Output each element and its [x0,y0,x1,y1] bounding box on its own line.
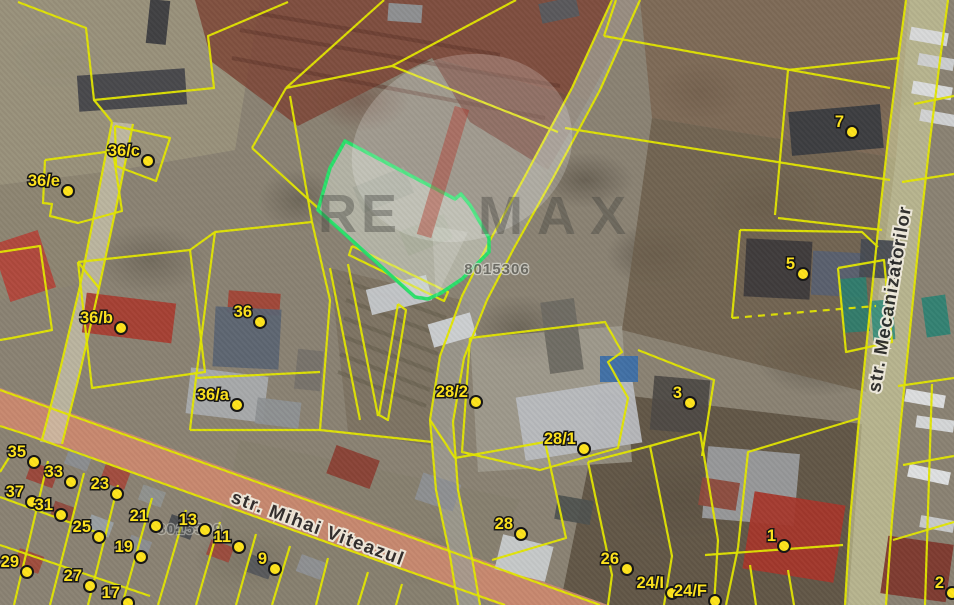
parcel-marker-dot-31[interactable] [55,509,67,521]
parcel-marker-dot-3[interactable] [684,397,696,409]
parcel-marker-dot-29[interactable] [21,566,33,578]
parcel-label-25[interactable]: 25 [73,518,91,536]
parcel-marker-dot-11[interactable] [233,541,245,553]
building [880,536,953,603]
parcel-label-7[interactable]: 7 [835,113,844,131]
building [255,397,302,428]
building [915,415,954,432]
parcel-label-28-2[interactable]: 28/2 [436,383,468,401]
parcel-label-3[interactable]: 3 [673,384,682,402]
parcel-label-36-c[interactable]: 36/c [108,142,140,160]
parcel-marker-dot-28-2[interactable] [470,396,482,408]
parcel-label-31[interactable]: 31 [35,496,53,514]
parcel-marker-dot-7[interactable] [846,126,858,138]
parcel-label-13[interactable]: 13 [179,511,197,529]
parcel-label-29[interactable]: 29 [1,553,19,571]
parcel-boundary-line [50,473,84,605]
parcel-label-24-i[interactable]: 24/I [636,574,664,592]
parcel-boundary-line [312,222,330,430]
parcel-label-36[interactable]: 36 [234,303,252,321]
parcel-marker-dot-21[interactable] [150,520,162,532]
parcel-label-26[interactable]: 26 [601,550,619,568]
parcel-label-23[interactable]: 23 [91,475,109,493]
parcel-label-5[interactable]: 5 [786,255,795,273]
parcel-marker-dot-36-c[interactable] [142,155,154,167]
building [698,477,740,511]
parcel-label-35[interactable]: 35 [8,443,26,461]
parcel-label-27[interactable]: 27 [64,567,82,585]
parcel-marker-dot-33[interactable] [65,476,77,488]
building [294,349,324,391]
parcel-marker-dot-36-b[interactable] [115,322,127,334]
parcel-label-36-b[interactable]: 36/b [80,309,113,327]
parcel-marker-dot-2[interactable] [946,587,954,599]
parcel-label-11[interactable]: 11 [214,528,231,546]
parcel-label-2[interactable]: 2 [935,574,944,592]
parcel-label-37[interactable]: 37 [6,483,24,501]
parcel-label-36-e[interactable]: 36/e [28,172,60,190]
watermark-text-max: MAX [478,186,640,246]
parcel-marker-dot-25[interactable] [93,531,105,543]
parcel-label-21[interactable]: 21 [130,507,148,525]
parcel-marker-dot-24-f[interactable] [709,595,721,605]
parcel-label-9[interactable]: 9 [258,550,267,568]
parcel-label-36-a[interactable]: 36/a [197,386,230,404]
parcel-marker-dot-1[interactable] [778,540,790,552]
parcel-marker-dot-13[interactable] [199,524,211,536]
parcel-marker-dot-19[interactable] [135,551,147,563]
building [600,356,638,382]
parcel-marker-dot-36-e[interactable] [62,185,74,197]
parcel-marker-dot-36-a[interactable] [231,399,243,411]
parcel-marker-dot-17[interactable] [122,597,134,605]
parcel-label-24-f[interactable]: 24/F [674,582,707,600]
parcel-boundary-line [898,378,954,386]
parcel-marker-dot-5[interactable] [797,268,809,280]
parcel-marker-dot-36[interactable] [254,316,266,328]
parcel-marker-dot-28-1[interactable] [578,443,590,455]
parcel-label-17[interactable]: 17 [102,584,120,602]
parcel-marker-dot-35[interactable] [28,456,40,468]
parcel-boundary-line [252,148,318,208]
parcel-marker-dot-26[interactable] [621,563,633,575]
building [840,277,870,333]
parcel-marker-dot-23[interactable] [111,488,123,500]
map-svg: REMAX80153068015309str. Mihai Viteazulst… [0,0,954,605]
watermark-text-re: RE [318,184,401,244]
building [921,295,950,338]
parcel-label-19[interactable]: 19 [115,538,133,556]
cadastral-number: 8015306 [464,261,529,278]
parcel-label-33[interactable]: 33 [45,463,63,481]
map-canvas[interactable]: REMAX80153068015309str. Mihai Viteazulst… [0,0,954,605]
parcel-label-28[interactable]: 28 [495,515,513,533]
building [742,491,845,582]
parcel-label-28-1[interactable]: 28/1 [544,430,576,448]
parcel-boundary-line [190,222,312,250]
parcel-marker-dot-28[interactable] [515,528,527,540]
building [387,3,422,23]
parcel-marker-dot-9[interactable] [269,563,281,575]
building [138,484,166,507]
building [904,389,946,409]
parcel-marker-dot-27[interactable] [84,580,96,592]
parcel-label-1[interactable]: 1 [767,527,776,545]
